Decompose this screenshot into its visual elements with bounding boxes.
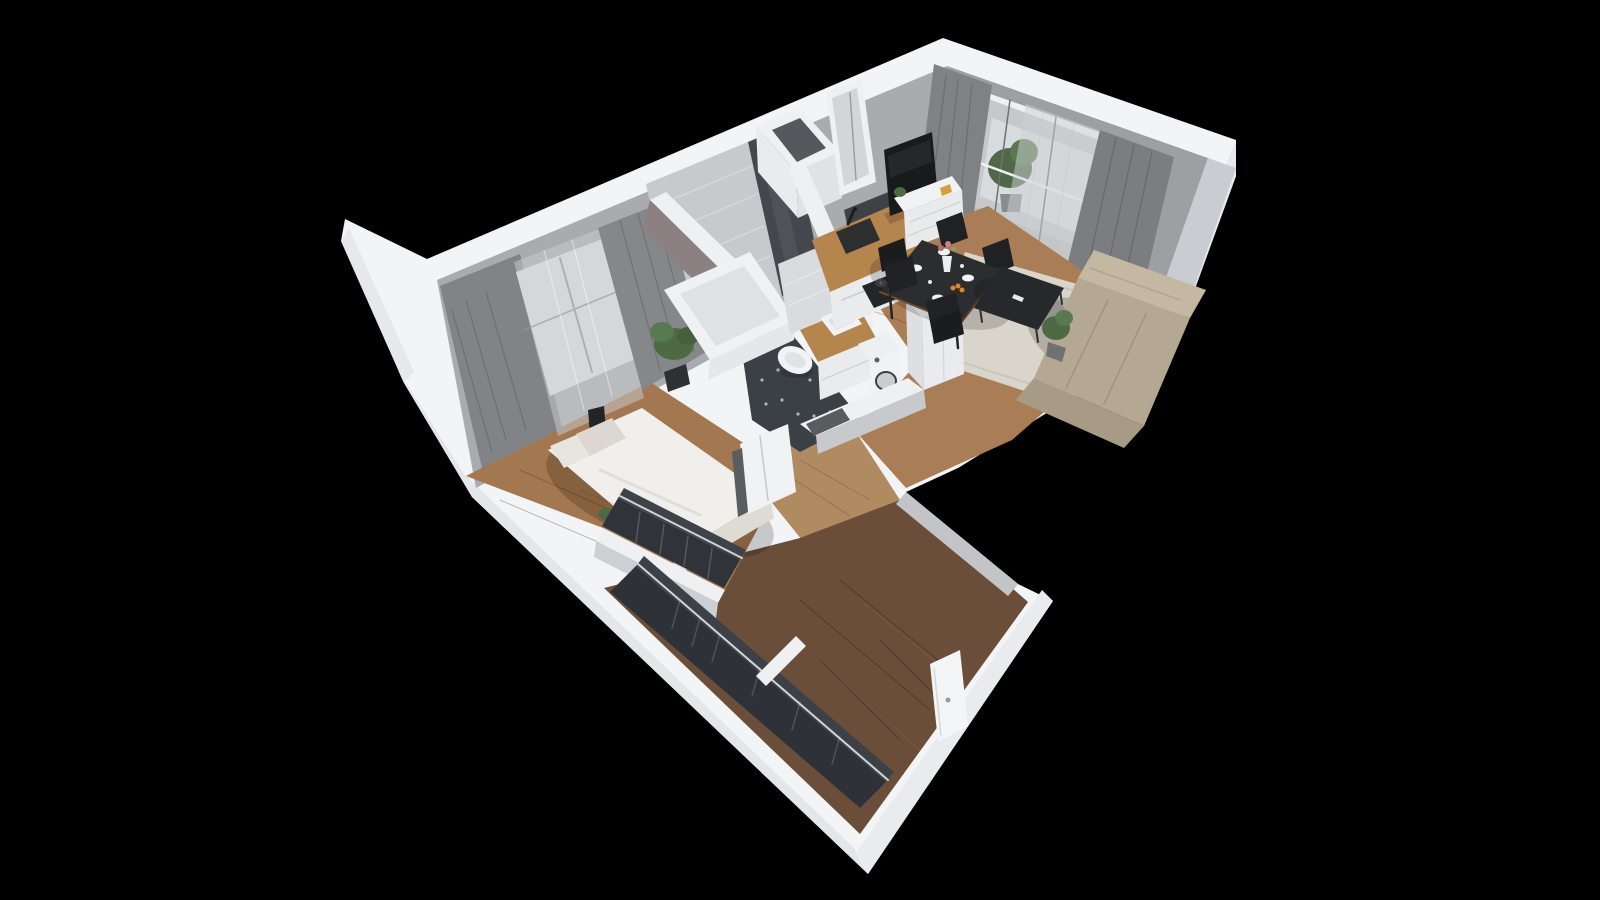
kitchen-faucet-head [853,207,857,211]
bath-tile-dot-7 [796,412,799,415]
plate-3 [962,275,974,282]
bedroom-plant-foliage-2 [650,322,674,342]
orange-2 [956,284,961,289]
orange-1 [951,286,956,291]
floorplan-stage [0,0,1600,900]
glass-1 [928,280,932,284]
washer-dial [875,358,880,363]
bath-tile-dot-8 [764,402,767,405]
bath-tile-dot-2 [776,368,779,371]
entrance-door-handle [946,698,951,703]
flower-1 [938,245,944,251]
console-deco-plant [894,187,906,197]
flower-2 [945,241,951,247]
bath-tile-dot-6 [780,398,783,401]
flower-3 [952,247,957,252]
bath-tile-dot-1 [760,378,763,381]
bath-tile-dot-9 [812,414,815,417]
glass-2 [960,264,964,268]
orange-3 [960,288,965,293]
apartment-3d-render [0,0,1600,900]
sofa-plant-foliage-2 [1055,310,1073,326]
bath-tile-dot-4 [808,378,811,381]
